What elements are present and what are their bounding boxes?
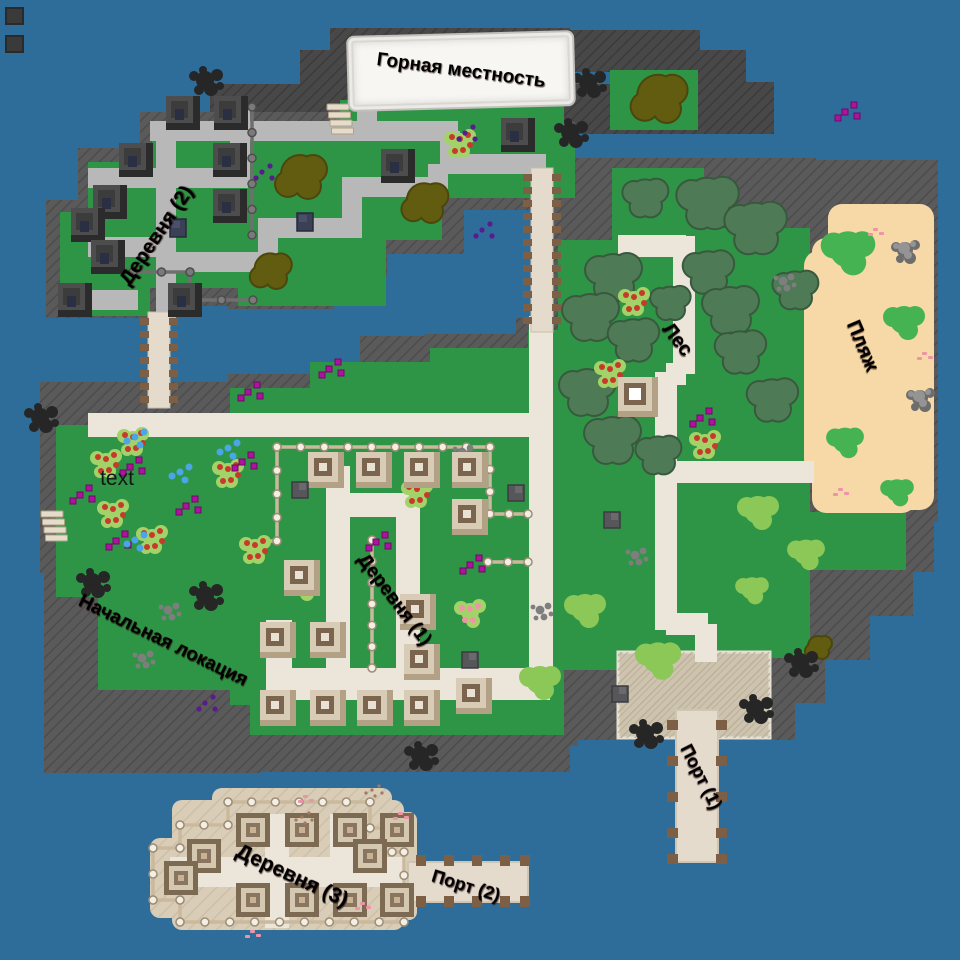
building-village2 xyxy=(119,143,153,177)
building-village2 xyxy=(501,118,535,152)
building-village1 xyxy=(260,622,296,658)
building-village3 xyxy=(236,883,270,917)
building-village2 xyxy=(213,189,247,223)
building-village3 xyxy=(380,883,414,917)
building-village2 xyxy=(166,96,200,130)
building-village1 xyxy=(404,644,440,680)
banner-label: Горная местность xyxy=(375,49,546,93)
building-village1 xyxy=(452,499,488,535)
building-village1 xyxy=(404,690,440,726)
game-map-canvas xyxy=(0,0,960,960)
building-village2 xyxy=(71,208,105,242)
game-map-viewport: Горная местность Деревня (2) Лес Пляж te… xyxy=(0,0,960,960)
building-village1 xyxy=(452,452,488,488)
building-village1 xyxy=(356,452,392,488)
building-village1 xyxy=(310,690,346,726)
label-note-text: text xyxy=(100,467,134,491)
building-village1 xyxy=(456,678,492,714)
building-village1 xyxy=(308,452,344,488)
building-village1 xyxy=(310,622,346,658)
building-village3 xyxy=(353,839,387,873)
building-village2 xyxy=(168,283,202,317)
building-village3 xyxy=(164,861,198,895)
mountain-area-banner: Горная местность xyxy=(351,35,571,107)
building-village1 xyxy=(260,690,296,726)
building-village2 xyxy=(214,96,248,130)
building-village2 xyxy=(213,143,247,177)
building-village1 xyxy=(357,690,393,726)
forest-building xyxy=(618,377,658,417)
building-village2 xyxy=(58,283,92,317)
building-village1 xyxy=(618,377,658,417)
building-village1 xyxy=(284,560,320,596)
building-village1 xyxy=(404,452,440,488)
village1-fence xyxy=(484,558,532,566)
building-village2 xyxy=(381,149,415,183)
